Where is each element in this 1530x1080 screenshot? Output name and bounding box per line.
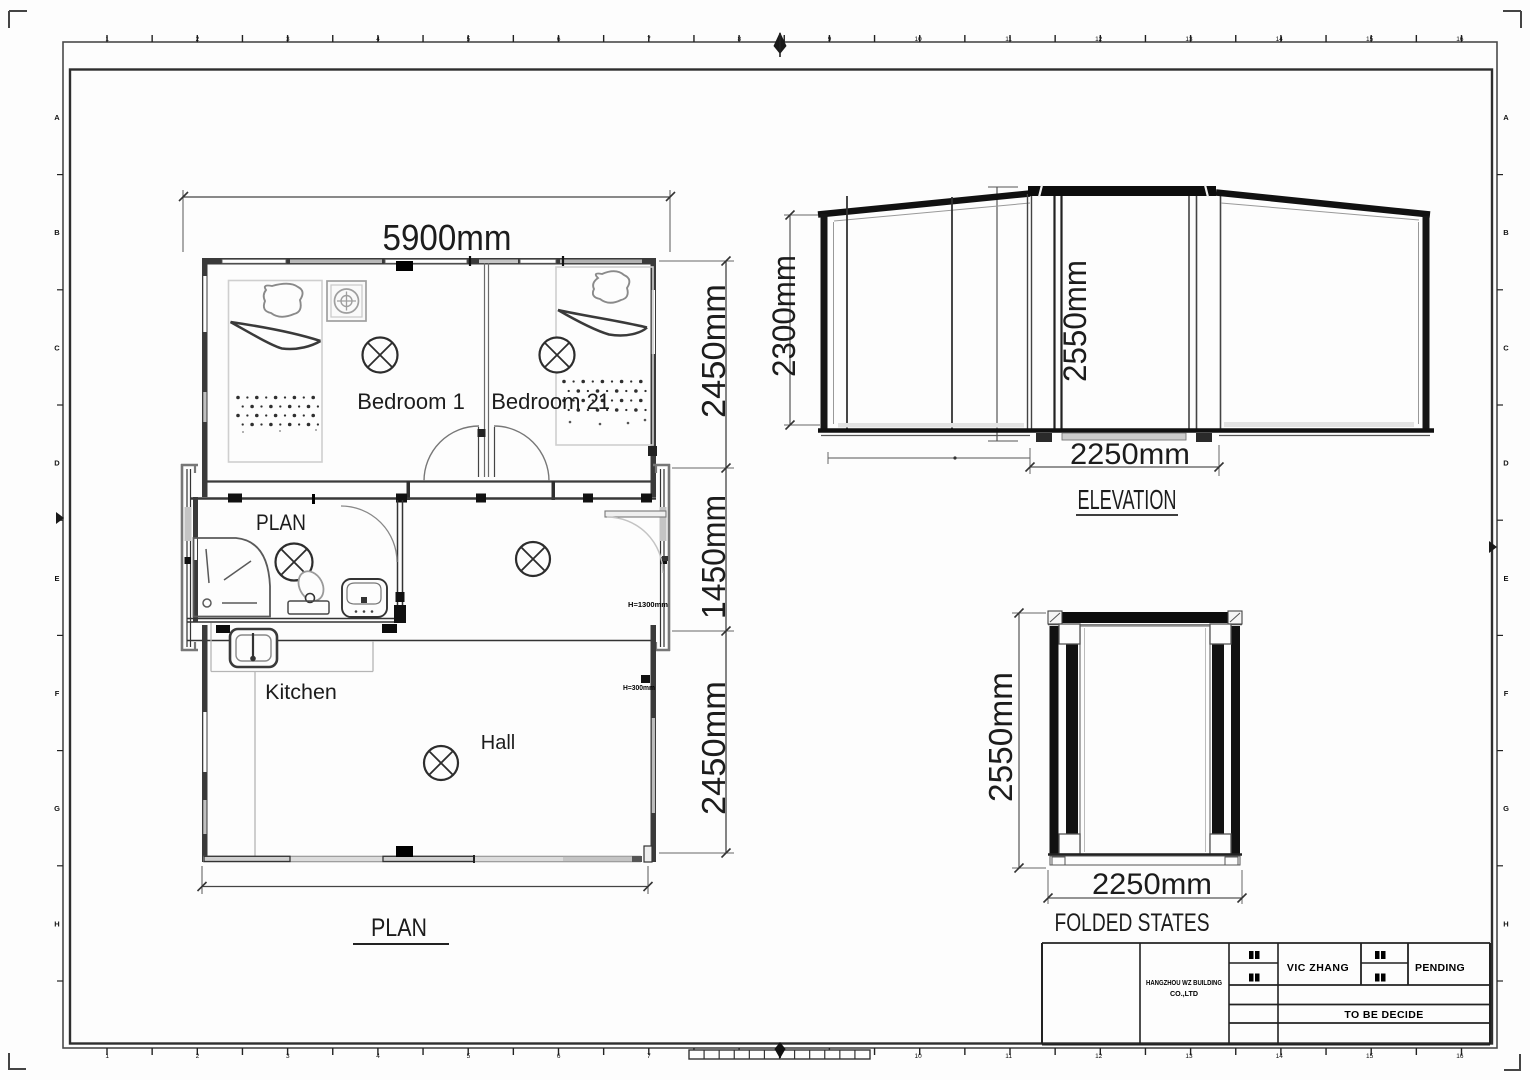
svg-text:G: G: [1503, 804, 1509, 813]
svg-text:12: 12: [1095, 1053, 1103, 1060]
svg-text:10: 10: [914, 36, 922, 43]
svg-text:4: 4: [376, 36, 380, 43]
svg-text:2250mm: 2250mm: [1092, 868, 1212, 901]
svg-text:12: 12: [1095, 36, 1103, 43]
svg-text:11: 11: [1005, 36, 1012, 43]
svg-text:14: 14: [1276, 1053, 1284, 1060]
svg-text:3: 3: [286, 36, 290, 43]
svg-text:10: 10: [914, 1053, 922, 1060]
svg-text:13: 13: [1185, 36, 1193, 43]
svg-text:2300mm: 2300mm: [766, 255, 802, 377]
svg-text:F: F: [55, 689, 60, 698]
svg-text:B: B: [54, 228, 60, 237]
svg-text:H: H: [1503, 919, 1508, 928]
svg-text:2: 2: [196, 1053, 200, 1060]
svg-text:13: 13: [1185, 1053, 1193, 1060]
svg-text:B: B: [1503, 228, 1509, 237]
svg-text:1: 1: [105, 1053, 109, 1060]
svg-text:15: 15: [1366, 36, 1374, 43]
svg-text:D: D: [1503, 459, 1509, 468]
svg-text:6: 6: [557, 36, 561, 43]
svg-text:G: G: [54, 804, 60, 813]
svg-text:15: 15: [1366, 1053, 1374, 1060]
svg-text:5: 5: [467, 1053, 471, 1060]
svg-text:2250mm: 2250mm: [1070, 438, 1190, 471]
svg-text:HANGZHOU WZ BUILDING: HANGZHOU WZ BUILDING: [1146, 978, 1222, 987]
svg-text:8: 8: [737, 36, 741, 43]
svg-text:1450mm: 1450mm: [695, 495, 732, 619]
svg-text:9: 9: [828, 36, 832, 43]
svg-text:VIC ZHANG: VIC ZHANG: [1287, 962, 1349, 974]
svg-text:H=300mm: H=300mm: [623, 683, 655, 692]
svg-text:16: 16: [1456, 36, 1464, 43]
svg-text:A: A: [1503, 113, 1509, 122]
svg-text:A: A: [54, 113, 60, 122]
svg-text:FOLDED STATES: FOLDED STATES: [1055, 909, 1210, 937]
svg-text:2550mm: 2550mm: [982, 672, 1019, 802]
svg-text:PLAN: PLAN: [256, 510, 306, 535]
svg-text:2450mm: 2450mm: [695, 681, 732, 815]
svg-text:Bedroom 1: Bedroom 1: [357, 389, 465, 414]
svg-text:Kitchen: Kitchen: [265, 680, 337, 704]
svg-text:PENDING: PENDING: [1415, 962, 1465, 974]
svg-text:7: 7: [647, 1053, 651, 1060]
svg-text:5900mm: 5900mm: [383, 217, 512, 258]
svg-text:16: 16: [1456, 1053, 1464, 1060]
svg-text:E: E: [1503, 574, 1508, 583]
svg-text:1: 1: [105, 36, 109, 43]
svg-text:6: 6: [557, 1053, 561, 1060]
svg-text:2450mm: 2450mm: [695, 284, 732, 418]
svg-text:ELEVATION: ELEVATION: [1078, 484, 1177, 515]
svg-text:7: 7: [647, 36, 651, 43]
svg-text:5: 5: [467, 36, 471, 43]
svg-text:1: 1: [598, 389, 610, 414]
svg-text:CO.,LTD: CO.,LTD: [1170, 989, 1199, 998]
svg-text:TO BE DECIDE: TO BE DECIDE: [1344, 1009, 1423, 1021]
svg-text:PLAN: PLAN: [371, 914, 427, 942]
svg-text:E: E: [54, 574, 59, 583]
svg-text:Bedroom 2: Bedroom 2: [491, 389, 599, 414]
svg-text:Hall: Hall: [481, 732, 515, 754]
svg-text:C: C: [54, 343, 60, 352]
svg-text:3: 3: [286, 1053, 290, 1060]
svg-text:4: 4: [376, 1053, 380, 1060]
svg-text:F: F: [1504, 689, 1509, 698]
svg-text:H=1300mm: H=1300mm: [628, 600, 668, 609]
svg-text:H: H: [54, 919, 59, 928]
svg-text:C: C: [1503, 343, 1509, 352]
svg-text:2: 2: [196, 36, 200, 43]
svg-text:14: 14: [1276, 36, 1284, 43]
svg-text:D: D: [54, 459, 60, 468]
svg-text:11: 11: [1005, 1053, 1012, 1060]
